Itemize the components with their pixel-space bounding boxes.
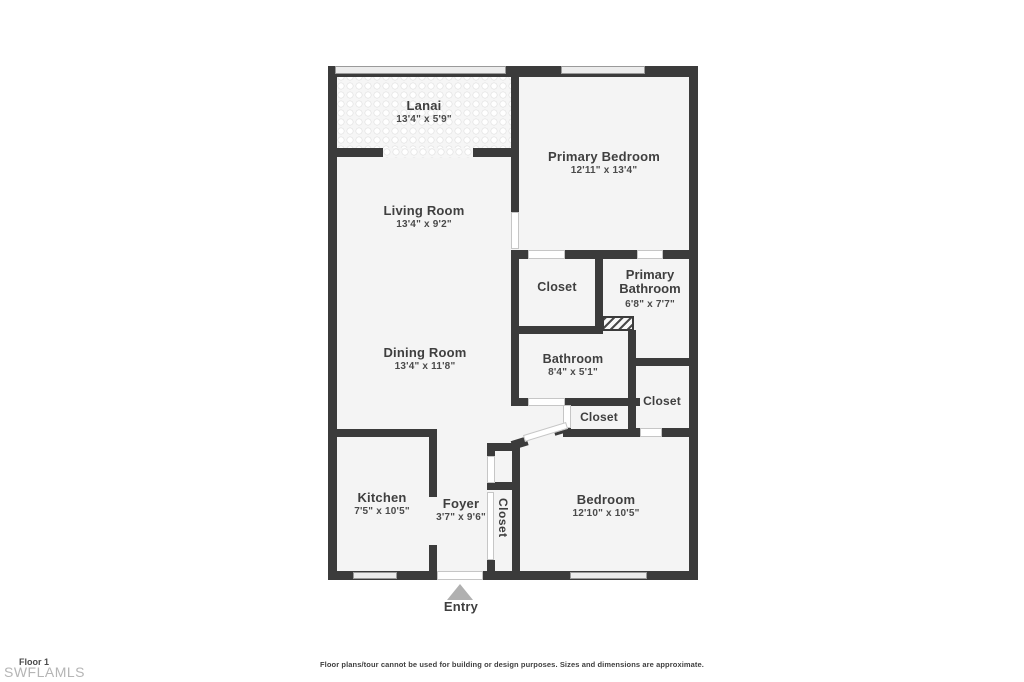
room-label-dining-room: Dining Room (383, 345, 466, 360)
wall (473, 148, 519, 157)
wall (563, 429, 640, 437)
room-label-kitchen: Kitchen (357, 490, 406, 505)
room-label-foyer: Foyer (443, 496, 479, 511)
room-dims-bedroom: 12'10" x 10'5" (572, 508, 639, 519)
door-foyer-closet-slider (487, 492, 494, 560)
wall (689, 66, 698, 580)
room-dims-primary-bathroom: 6'8" x 7'7" (625, 299, 675, 310)
door-bathroom (528, 398, 565, 406)
room-dims-foyer: 3'7" x 9'6" (436, 512, 486, 523)
shower-hatch (602, 316, 634, 331)
room-dims-kitchen: 7'5" x 10'5" (354, 506, 410, 517)
room-label-living-room: Living Room (384, 203, 465, 218)
door-right-closet (640, 428, 662, 437)
wall (512, 443, 520, 580)
wall (429, 545, 437, 578)
room-label-closet-top: Closet (537, 280, 576, 294)
room-label-bathroom: Bathroom (543, 352, 604, 366)
room-label-primary-bedroom: Primary Bedroom (548, 149, 660, 164)
wall (429, 429, 437, 497)
entry-opening (437, 571, 483, 580)
wall (487, 443, 495, 456)
wall (328, 429, 437, 437)
room-dims-lanai: 13'4" x 5'9" (396, 114, 452, 125)
lanai-slider-opening (383, 148, 473, 158)
room-label-lanai: Lanai (407, 98, 442, 113)
room-label-bedroom: Bedroom (577, 492, 635, 507)
room-label-closet-hall: Closet (580, 410, 618, 424)
room-label-primary-bathroom: Primary Bathroom (600, 268, 700, 296)
window-kitchen (353, 572, 397, 579)
entry-label: Entry (444, 599, 478, 614)
room-label-closet-foyer: Closet (496, 498, 510, 538)
window-primary-bedroom (561, 66, 645, 74)
wall (511, 326, 603, 334)
room-dims-bathroom: 8'4" x 5'1" (548, 367, 598, 378)
room-dims-primary-bedroom: 12'11" x 13'4" (571, 165, 638, 176)
room-label-closet-right: Closet (643, 394, 681, 408)
wall (628, 330, 636, 437)
wall (487, 482, 513, 490)
door-primary-bedroom (511, 212, 519, 249)
door-closet-top (528, 250, 565, 259)
room-dims-dining-room: 13'4" x 11'8" (395, 361, 456, 372)
door-primary-bathroom (637, 250, 663, 259)
entry-arrow-icon (447, 584, 473, 600)
wall (328, 66, 337, 580)
window-lanai (335, 66, 506, 74)
disclaimer-text: Floor plans/tour cannot be used for buil… (0, 660, 1024, 669)
door-foyer-closet-upper (487, 456, 495, 483)
wall (511, 66, 519, 212)
floor-plan-page: Lanai 13'4" x 5'9" Living Room 13'4" x 9… (0, 0, 1024, 682)
room-dims-living-room: 13'4" x 9'2" (396, 219, 452, 230)
window-bedroom (570, 572, 647, 579)
wall (487, 560, 495, 580)
wall (628, 358, 698, 366)
wall (328, 148, 383, 157)
